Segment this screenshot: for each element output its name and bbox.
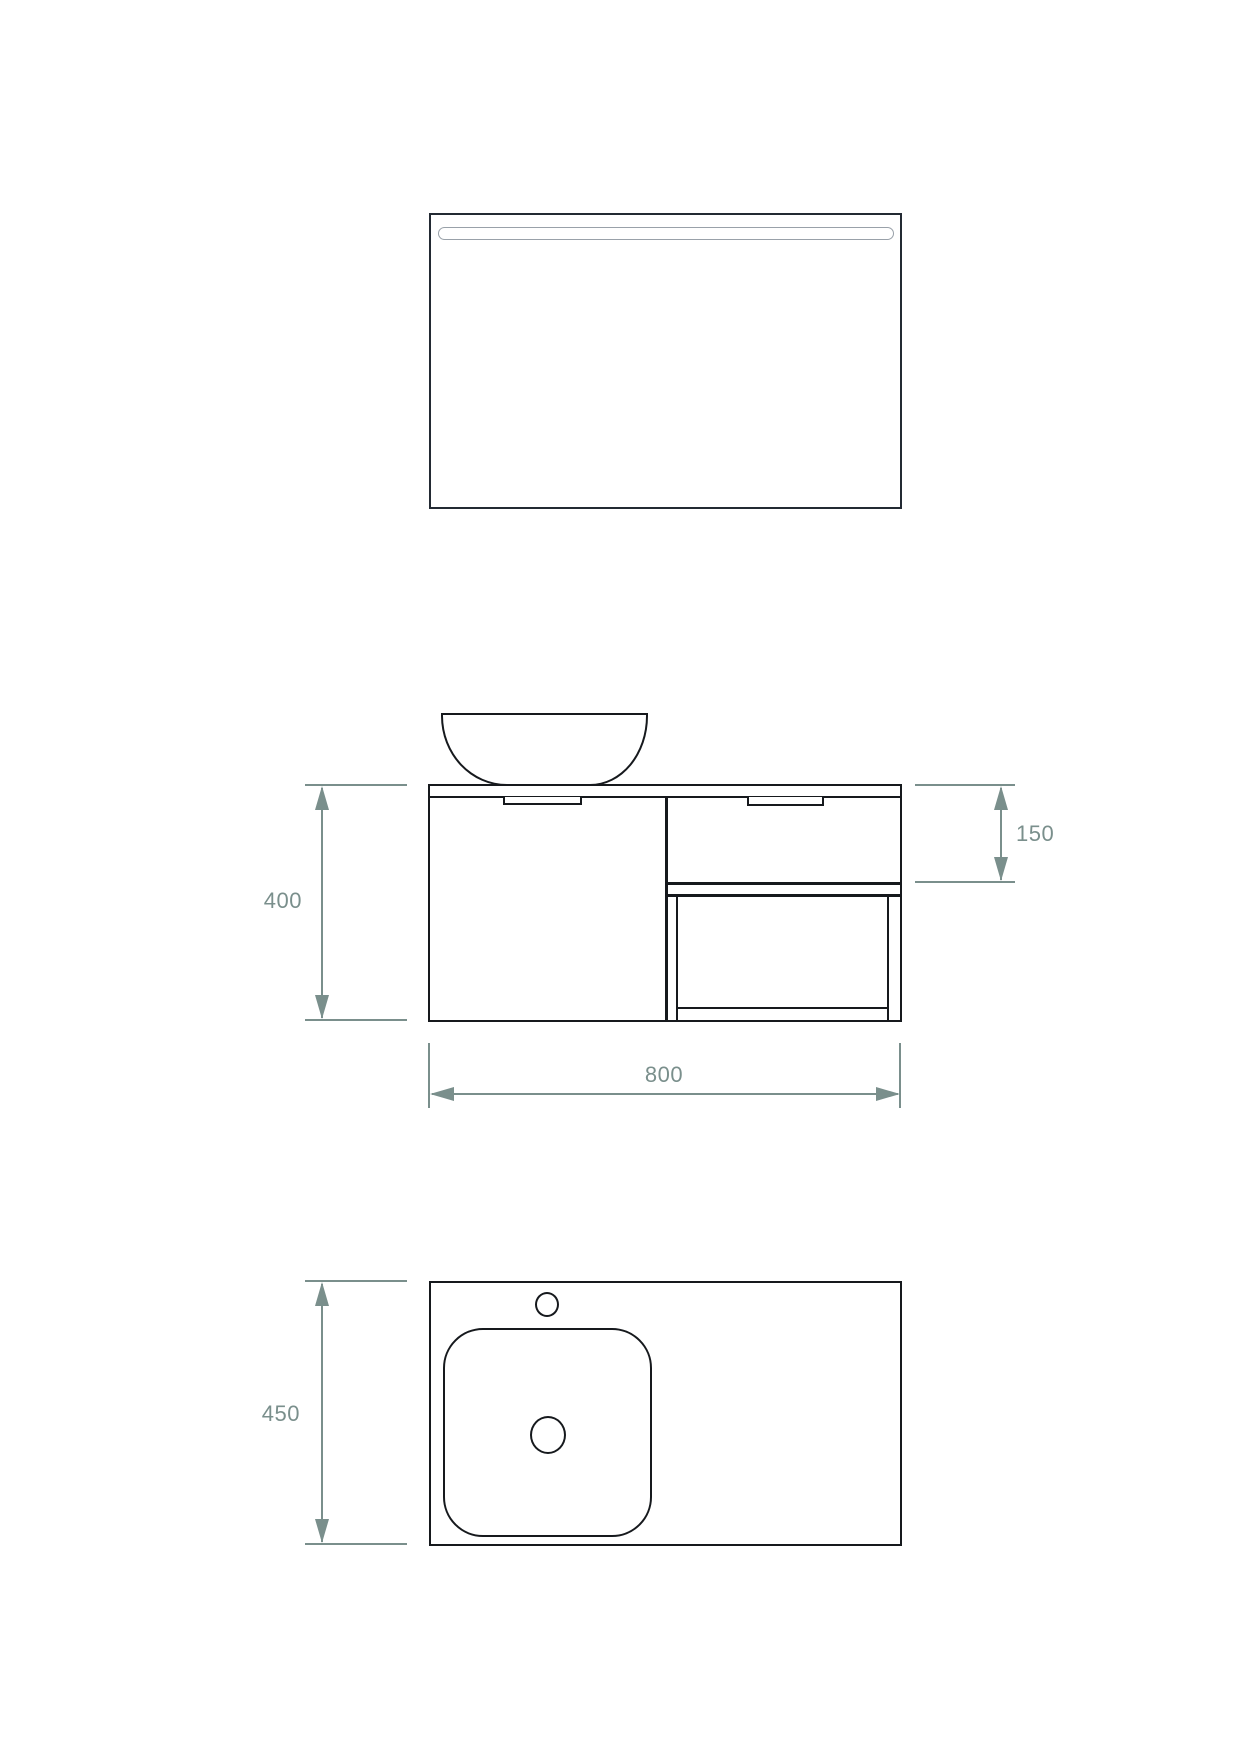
countertop (428, 784, 902, 798)
dim-400-line (321, 788, 323, 1018)
dim-450-arrow-down (315, 1519, 329, 1543)
door-drawer-divider (665, 797, 668, 1021)
dim-800-arrow-right (876, 1087, 900, 1101)
mirror-outline (429, 213, 902, 509)
mirror-view (0, 0, 1241, 560)
mirror-light-strip (438, 227, 894, 240)
shelf-top-line (666, 894, 900, 897)
dim-400-arrow-up (315, 786, 329, 810)
dim-450-arrow-up (315, 1282, 329, 1306)
dim-150-label: 150 (1016, 822, 1096, 846)
dim-450-line (321, 1284, 323, 1542)
drain-hole (530, 1416, 566, 1454)
tap-hole (535, 1292, 559, 1317)
dim-400-arrow-down (315, 995, 329, 1019)
dim-800-line (432, 1093, 898, 1095)
dim-450-label: 450 (228, 1402, 300, 1426)
dim-400-extension-bottom (305, 1019, 407, 1021)
dim-800-label: 800 (614, 1063, 714, 1087)
dim-450-extension-bottom (305, 1543, 407, 1545)
dim-800-arrow-left (430, 1087, 454, 1101)
shelf-inner-right-line (887, 894, 889, 1021)
drawer-bottom-line (666, 882, 900, 885)
dim-150-arrow-up (994, 786, 1008, 810)
technical-drawing-canvas: 400 150 800 450 (0, 0, 1241, 1754)
dim-150-extension-bottom (915, 881, 1015, 883)
drawer-handle-recess (747, 797, 824, 806)
shelf-inner-bottom-line (676, 1007, 889, 1009)
dim-400-label: 400 (230, 889, 302, 913)
vessel-basin-bowl (441, 713, 648, 786)
dim-150-arrow-down (994, 857, 1008, 881)
door-handle-recess (503, 797, 582, 805)
shelf-inner-left-line (676, 894, 678, 1021)
